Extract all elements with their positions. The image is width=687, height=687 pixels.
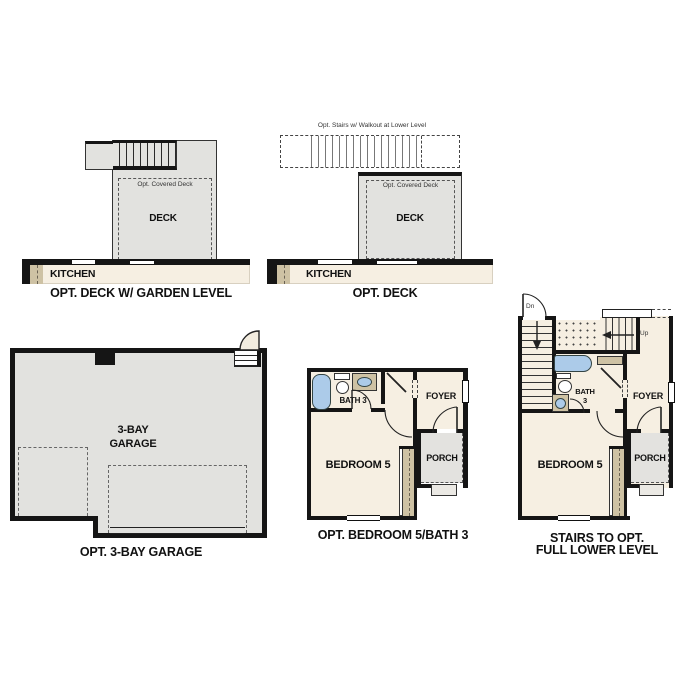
- optional-stairs-outline: [280, 135, 460, 168]
- stairs-up: [600, 317, 636, 354]
- optional-stairs-divider: [421, 136, 422, 167]
- wall: [307, 408, 352, 412]
- hatch-dash: [409, 448, 410, 516]
- wall: [623, 354, 627, 380]
- wall: [10, 348, 267, 353]
- figure-caption-line2: FULL LOWER LEVEL: [506, 543, 687, 557]
- figure-caption: OPT. DECK W/ GARDEN LEVEL: [26, 286, 256, 300]
- bedroom-label: BEDROOM 5: [520, 459, 620, 472]
- bath-label-line2: 3: [566, 397, 604, 406]
- covered-deck-label: Opt. Covered Deck: [118, 181, 212, 188]
- wall: [609, 446, 624, 449]
- bath-label: BATH 3: [323, 396, 383, 405]
- covered-deck-label: Opt. Covered Deck: [366, 182, 455, 189]
- foyer-label: FOYER: [418, 391, 464, 401]
- wall: [307, 368, 311, 520]
- porch-label: PORCH: [631, 453, 669, 463]
- toilet-bowl: [336, 381, 349, 394]
- stair-landing: [85, 141, 114, 170]
- hatch-dash: [284, 265, 285, 284]
- stair-landing: [602, 309, 652, 318]
- porch-step: [431, 484, 457, 496]
- wall: [518, 316, 523, 320]
- stairs-note: Opt. Stairs w/ Walkout at Lower Level: [272, 122, 472, 129]
- deck-label: DECK: [360, 213, 460, 225]
- wall: [413, 368, 417, 380]
- dn-label: Dn: [526, 303, 534, 310]
- wall: [371, 408, 385, 412]
- optional-stairs-treads: [305, 136, 421, 167]
- toilet: [556, 373, 571, 379]
- garage-door: [110, 527, 245, 534]
- stairs-down: [522, 320, 552, 413]
- bathtub: [554, 355, 592, 372]
- car-bay-outline: [18, 447, 88, 516]
- wall-hatch: [30, 265, 43, 284]
- window: [347, 515, 380, 521]
- foyer-label: FOYER: [626, 391, 670, 401]
- garage-label-line1: 3-BAY: [33, 424, 233, 437]
- kitchen-floor: [267, 265, 493, 284]
- wall: [10, 348, 15, 521]
- wall: [262, 348, 267, 538]
- porch-label: PORCH: [421, 453, 463, 463]
- floorplan-sheet: Opt. Covered Deck DECK KITCHEN OPT. DECK…: [0, 0, 687, 687]
- sink: [555, 398, 566, 409]
- wall-hatch: [597, 356, 623, 365]
- hatch-dash: [37, 265, 38, 284]
- wall: [518, 316, 522, 520]
- stairs: [113, 140, 177, 170]
- wall: [22, 259, 30, 284]
- kitchen-label: KITCHEN: [306, 268, 351, 280]
- kitchen-label: KITCHEN: [50, 268, 95, 280]
- figure-caption: OPT. 3-BAY GARAGE: [21, 545, 261, 559]
- figure-caption: OPT. BEDROOM 5/BATH 3: [303, 528, 483, 542]
- wall-notch: [95, 353, 115, 365]
- optional-stair-zone: [556, 320, 600, 350]
- entry-steps: [234, 350, 261, 367]
- sink: [357, 377, 372, 387]
- figure-caption: OPT. DECK: [285, 286, 485, 300]
- window: [558, 515, 590, 521]
- wall: [10, 516, 98, 521]
- wall: [307, 368, 468, 372]
- wall: [399, 446, 414, 449]
- wall: [267, 259, 277, 284]
- car-bay-outline: [108, 465, 247, 533]
- porch-step: [639, 484, 664, 496]
- deck-label: DECK: [113, 213, 213, 225]
- bedroom-label: BEDROOM 5: [308, 459, 408, 472]
- wall-hatch: [277, 265, 290, 284]
- up-label: Up: [640, 330, 648, 337]
- toilet: [334, 373, 350, 380]
